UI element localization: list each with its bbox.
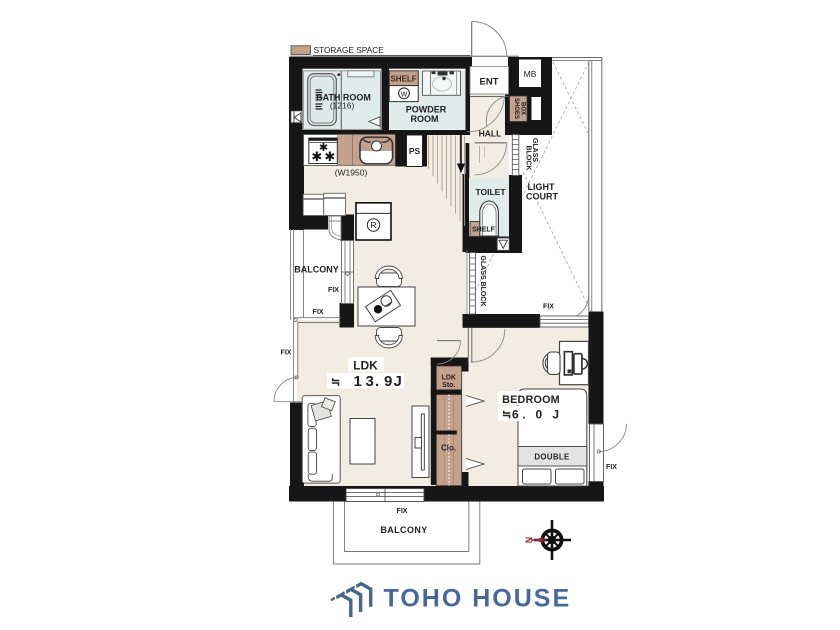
svg-text:FIX: FIX bbox=[397, 508, 408, 515]
svg-text:ENT: ENT bbox=[480, 77, 499, 88]
svg-text:Clo.: Clo. bbox=[441, 444, 456, 453]
svg-text:BALCONY: BALCONY bbox=[294, 265, 339, 275]
svg-text:FIX: FIX bbox=[313, 309, 324, 316]
svg-text:BEDROOM: BEDROOM bbox=[502, 394, 560, 406]
svg-text:(1216): (1216) bbox=[330, 101, 355, 111]
svg-text:SHELF: SHELF bbox=[472, 227, 496, 234]
svg-text:N: N bbox=[524, 537, 534, 544]
svg-text:GLASS BLOCK: GLASS BLOCK bbox=[479, 256, 486, 307]
svg-text:FIX: FIX bbox=[281, 350, 292, 357]
svg-text:BLOCK: BLOCK bbox=[525, 146, 532, 171]
svg-text:FIX: FIX bbox=[543, 304, 554, 311]
svg-text:W: W bbox=[401, 91, 408, 98]
svg-text:BALCONY: BALCONY bbox=[380, 525, 427, 535]
svg-text:13.9J: 13.9J bbox=[354, 373, 402, 390]
svg-text:≒: ≒ bbox=[502, 409, 511, 421]
svg-text:SHELF: SHELF bbox=[390, 75, 416, 84]
svg-text:MB: MB bbox=[524, 69, 537, 79]
svg-text:ROOM: ROOM bbox=[411, 114, 439, 124]
svg-text:FIX: FIX bbox=[328, 287, 339, 294]
svg-text:SHOES: SHOES bbox=[513, 98, 519, 119]
svg-text:PS: PS bbox=[409, 146, 421, 156]
svg-text:✱: ✱ bbox=[311, 149, 322, 164]
svg-text:≒: ≒ bbox=[331, 377, 340, 389]
svg-text:TOILET: TOILET bbox=[475, 187, 506, 197]
svg-text:DOUBLE: DOUBLE bbox=[534, 453, 569, 462]
svg-text:BOX: BOX bbox=[520, 102, 526, 115]
svg-text:✱: ✱ bbox=[324, 149, 335, 164]
svg-text:(W1950): (W1950) bbox=[335, 168, 368, 178]
svg-text:LDK: LDK bbox=[442, 375, 456, 382]
svg-text:R: R bbox=[370, 220, 376, 230]
svg-text:LIGHT: LIGHT bbox=[528, 182, 555, 192]
svg-text:COURT: COURT bbox=[526, 192, 558, 202]
svg-text:HALL: HALL bbox=[479, 129, 502, 139]
svg-text:6. 0 J: 6. 0 J bbox=[512, 408, 562, 422]
svg-text:FIX: FIX bbox=[606, 464, 617, 471]
svg-text:LDK: LDK bbox=[353, 359, 378, 373]
svg-text:STORAGE SPACE: STORAGE SPACE bbox=[314, 45, 385, 55]
svg-text:POWDER: POWDER bbox=[406, 105, 447, 115]
svg-text:TOHO HOUSE: TOHO HOUSE bbox=[384, 585, 572, 613]
svg-text:Sto.: Sto. bbox=[442, 382, 455, 389]
